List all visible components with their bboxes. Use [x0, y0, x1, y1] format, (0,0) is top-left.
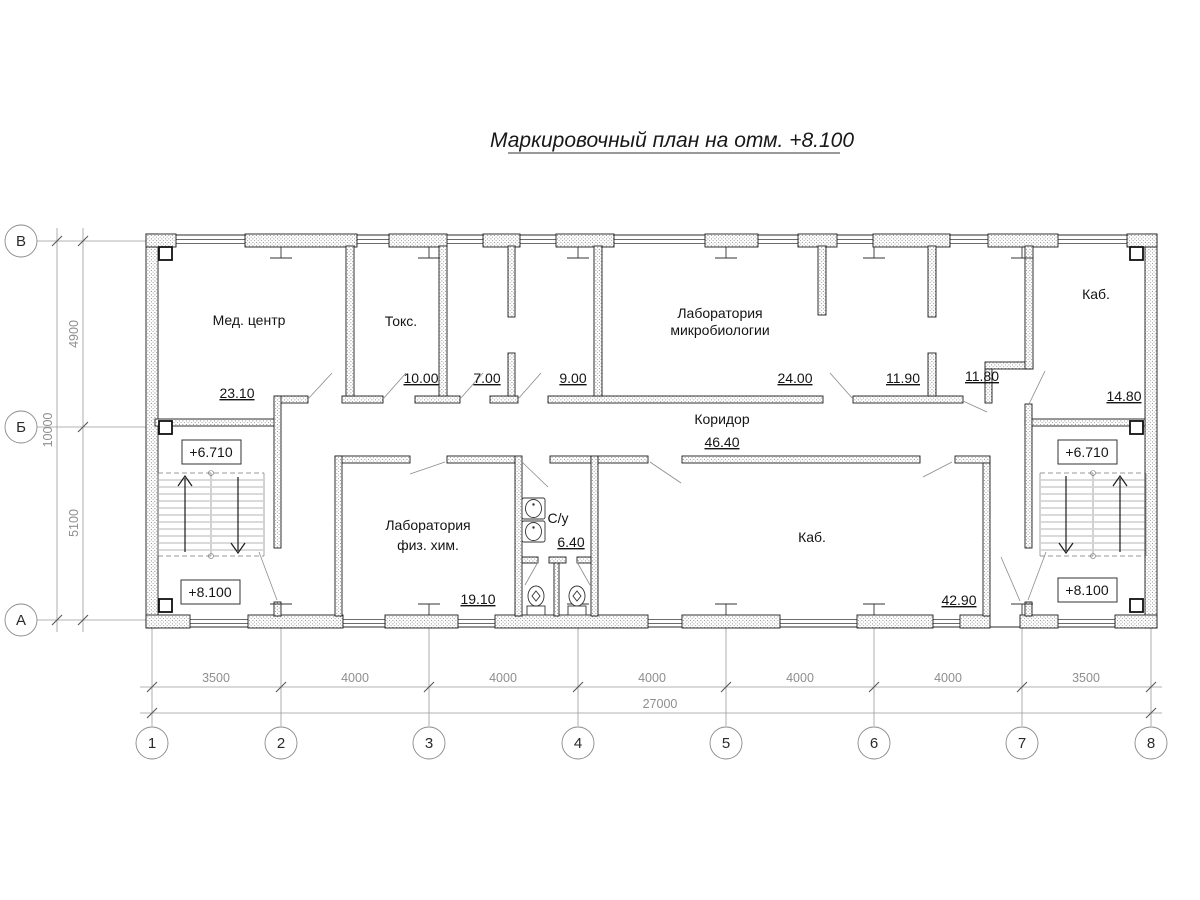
axis-label-7: 7 [1018, 735, 1026, 752]
level-mark-current-left: +8.100 [188, 584, 231, 600]
dim-bottom-seg-7: 3500 [1072, 671, 1100, 685]
floor-plan-svg: Маркировочный план на отм. +8.100 4900 5… [0, 0, 1200, 900]
room-area-fizhim: 19.10 [460, 591, 495, 607]
axis-label-6: 6 [870, 735, 878, 752]
wall-stair-right-top [1025, 419, 1145, 426]
room-area-su: 6.40 [557, 534, 584, 550]
wall-kab-bottom-right [983, 463, 990, 616]
dim-bottom-seg-4: 4000 [638, 671, 666, 685]
dim-bottom-seg-3: 4000 [489, 671, 517, 685]
sink-icon [522, 521, 545, 542]
drawing-page: Маркировочный план на отм. +8.100 4900 5… [0, 0, 1200, 900]
stair-up-arrow [1113, 476, 1127, 552]
wall-kab-top-left [1025, 246, 1033, 369]
sink-icon [522, 498, 545, 519]
wall-exterior-left [146, 234, 158, 628]
level-mark-current-right: +8.100 [1065, 582, 1108, 598]
stair-up-arrow [178, 476, 192, 552]
wall-partition-toks-700 [439, 246, 447, 396]
room-area-1190: 11.90 [886, 370, 920, 386]
room-name-kab-bottom: Каб. [798, 529, 826, 545]
dim-bottom-seg-2: 4000 [341, 671, 369, 685]
room-area-kab-bottom: 42.90 [941, 592, 976, 608]
stairs-left [158, 471, 264, 559]
axis-label-v: В [16, 233, 26, 250]
room-name-micro-line2: микробиологии [670, 322, 769, 338]
stairs-right [1040, 471, 1146, 559]
door-leaves [259, 371, 1046, 601]
axis-label-4: 4 [574, 735, 582, 752]
room-name-med-center: Мед. центр [213, 312, 286, 328]
wall-partition-900-micro [594, 246, 602, 396]
axis-label-1: 1 [148, 735, 156, 752]
toilet-icon [527, 586, 545, 615]
wall-su-left [515, 456, 522, 616]
room-name-micro-line1: Лаборатория [677, 305, 762, 321]
dim-left-seg-2: 5100 [67, 509, 81, 537]
axis-label-b: Б [16, 419, 26, 436]
stair-down-arrow [1059, 476, 1073, 553]
wall-fizhim-left [335, 456, 342, 616]
dim-left-total: 10000 [41, 413, 55, 448]
level-marks: +6.710 +8.100 +6.710 +8.100 [181, 440, 1117, 604]
room-area-med-center: 23.10 [219, 385, 254, 401]
room-area-900: 9.00 [559, 370, 586, 386]
axis-bubbles-cols: 1 2 3 4 5 6 7 8 [136, 727, 1167, 759]
axis-bubbles-rows: В Б А [5, 225, 37, 636]
dim-bottom-total: 27000 [643, 697, 678, 711]
wall-stall-divider [554, 563, 559, 616]
room-area-micro: 24.00 [777, 370, 812, 386]
drawing-title: Маркировочный план на отм. +8.100 [490, 129, 854, 152]
column-markers [159, 247, 1143, 612]
axis-label-a: А [16, 612, 26, 629]
dim-bottom-seg-6: 4000 [934, 671, 962, 685]
room-name-fizhim-line1: Лаборатория [385, 517, 470, 533]
dim-bottom-seg-1: 3500 [202, 671, 230, 685]
axis-label-2: 2 [277, 735, 285, 752]
windows [146, 235, 1157, 627]
walls [146, 234, 1157, 628]
dim-left-seg-1: 4900 [67, 320, 81, 348]
room-area-toks: 10.00 [403, 370, 438, 386]
axis-label-3: 3 [425, 735, 433, 752]
wall-su-right [591, 456, 598, 616]
room-name-toks: Токс. [385, 313, 417, 329]
axis-label-8: 8 [1147, 735, 1155, 752]
room-name-fizhim-line2: физ. хим. [397, 537, 459, 553]
level-mark-upper-left: +6.710 [189, 444, 232, 460]
wall-stair-left-top [155, 419, 277, 426]
wall-exterior-right [1145, 234, 1157, 628]
room-area-corridor: 46.40 [704, 434, 739, 450]
room-name-su: С/у [548, 510, 569, 526]
axis-datum-symbols [270, 247, 1033, 615]
room-area-1180: 11.80 [965, 368, 999, 384]
level-mark-upper-right: +6.710 [1065, 444, 1108, 460]
room-area-700: 7.00 [473, 370, 500, 386]
dim-bottom-seg-5: 4000 [786, 671, 814, 685]
wall-partition-med-toks [346, 246, 354, 396]
axis-label-5: 5 [722, 735, 730, 752]
room-area-kab-top: 14.80 [1106, 388, 1141, 404]
room-name-corridor: Коридор [694, 411, 750, 427]
room-name-kab-top: Каб. [1082, 286, 1110, 302]
toilet-icon [568, 586, 586, 615]
